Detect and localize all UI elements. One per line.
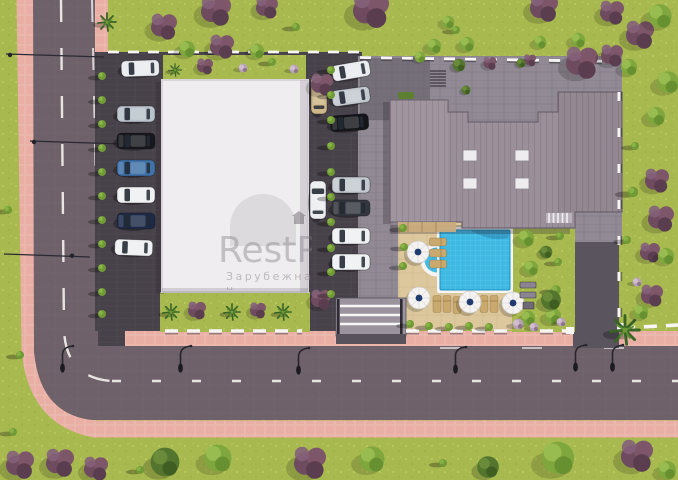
car [328,200,370,218]
car [328,228,370,246]
car [113,133,155,151]
aerial-site-plan-render: RestP Зарубежная н [0,0,678,480]
roof-edge [300,80,308,292]
hedge [398,92,414,99]
parking-entrance [98,331,125,346]
gate-post [566,327,574,334]
car [308,181,326,223]
white-building [156,80,308,294]
entrance-ramp [336,298,406,336]
entrance-stairs [546,213,572,223]
car [113,213,155,231]
pool-water [440,230,510,290]
roof-edge-shadow [162,288,308,293]
car [117,60,160,79]
car [113,160,155,178]
car [113,106,155,124]
white-building-roof [162,80,308,292]
scene-canvas [0,0,678,480]
entrance-apron [336,334,406,344]
car [113,187,155,205]
car [328,177,370,195]
car [328,254,370,272]
